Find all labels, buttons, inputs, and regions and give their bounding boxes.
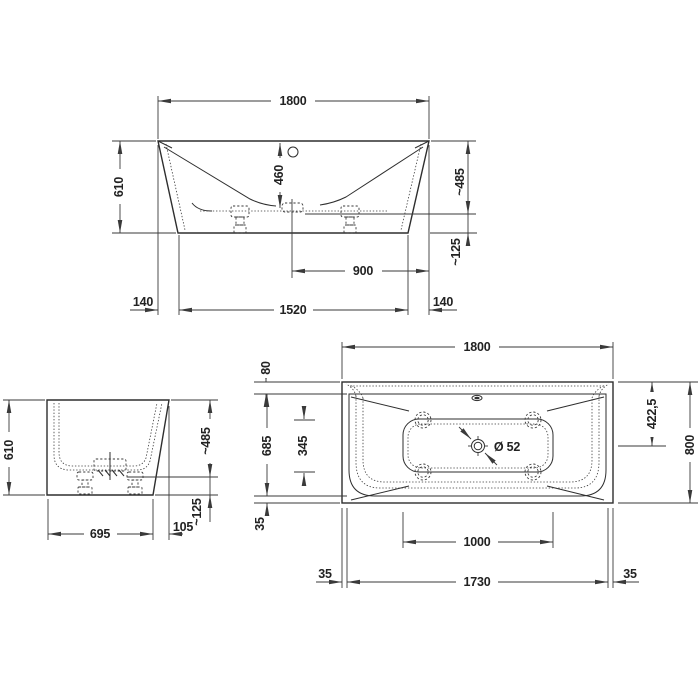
- dim-plan-rim-top: 80: [259, 358, 274, 402]
- dim-plan-floor-width: 345: [296, 406, 310, 486]
- dim-label-plan-overall-length: 1800: [463, 340, 490, 354]
- dim-label-side-overall-height: 610: [2, 440, 16, 461]
- drain-symbol: Ø 52: [459, 427, 520, 465]
- side-elevation-view: 610 ~485 ~125 695 105: [2, 400, 218, 541]
- dim-label-front-inner-depth: 460: [272, 165, 286, 186]
- dim-label-front-overall-width: 1800: [279, 94, 306, 108]
- dim-front-left-inset: 140: [130, 295, 158, 310]
- dim-label-plan-rim-left: 35: [318, 567, 332, 581]
- dim-side-rim-overhang: 105: [169, 520, 193, 534]
- plan-feet: [415, 412, 541, 480]
- dim-plan-drain-from-edge: 422,5: [645, 382, 660, 446]
- front-elevation-view: 1800 610 460 ~485 ~125 900 140: [112, 94, 477, 317]
- dim-label-front-base-width: 1520: [279, 303, 306, 317]
- dim-label-front-overall-height: 610: [112, 177, 126, 198]
- dim-label-plan-inner-length: 1730: [463, 575, 490, 589]
- dim-plan-overall-length: 1800: [342, 340, 613, 354]
- dim-front-rim-to-ledge: ~485: [453, 141, 468, 214]
- bathtub-side-outline: [47, 400, 169, 495]
- dim-plan-inner-width: 685: [260, 394, 275, 496]
- dim-plan-rim-right: 35: [613, 567, 639, 582]
- dim-side-overall-height: 610: [2, 400, 17, 495]
- side-right-foot: [127, 472, 143, 494]
- dim-front-center-to-right: 900: [292, 264, 429, 278]
- dim-plan-floor-length: 1000: [403, 535, 553, 549]
- dim-label-plan-rim-right: 35: [623, 567, 637, 581]
- dim-label-front-left-inset: 140: [133, 295, 154, 309]
- dim-label-plan-floor-width: 345: [296, 436, 310, 457]
- plan-extension-lines: [254, 342, 698, 588]
- plan-seat-edge: [408, 424, 548, 468]
- dim-side-base-width: 695: [48, 527, 153, 541]
- dim-front-overall-height: 610: [112, 141, 127, 233]
- dim-plan-rim-bottom: 35: [253, 503, 267, 531]
- dim-label-plan-floor-length: 1000: [463, 535, 490, 549]
- dim-label-side-rim-to-ledge: ~485: [199, 427, 213, 455]
- dim-label-front-right-inset: 140: [433, 295, 454, 309]
- plan-slope-edges: [351, 397, 604, 500]
- overflow-symbol-front: [288, 147, 298, 157]
- plan-view: Ø 52 1800: [253, 340, 698, 589]
- overflow-symbol-plan: [472, 395, 482, 400]
- dim-front-right-inset: 140: [429, 295, 457, 310]
- side-left-foot: [77, 472, 93, 494]
- dim-plan-inner-length: 1730: [347, 575, 608, 589]
- dim-side-base-height: ~125: [190, 477, 210, 526]
- front-left-foot: [231, 206, 249, 233]
- dim-label-front-center-to-right: 900: [353, 264, 374, 278]
- front-extension-lines: [112, 96, 477, 315]
- dim-label-drain-diameter: Ø 52: [494, 440, 521, 454]
- dim-plan-rim-left: 35: [316, 567, 342, 582]
- bathtub-front-outline: [158, 141, 429, 233]
- dim-label-plan-drain-from-edge: 422,5: [645, 399, 659, 430]
- dim-label-plan-inner-width: 685: [260, 436, 274, 457]
- dim-front-inner-depth: 460: [272, 143, 287, 208]
- dim-label-plan-rim-top: 80: [259, 361, 273, 375]
- dim-front-base-height: ~125: [449, 214, 468, 266]
- bathtub-dimension-drawing: 1800 610 460 ~485 ~125 900 140: [0, 0, 700, 700]
- dim-label-side-rim-overhang: 105: [173, 520, 194, 534]
- side-hidden-walls: [54, 403, 162, 480]
- dim-label-plan-rim-bottom: 35: [253, 517, 267, 531]
- dim-label-side-base-width: 695: [90, 527, 111, 541]
- dim-side-rim-to-ledge: ~485: [199, 400, 214, 477]
- technical-drawing-page: 1800 610 460 ~485 ~125 900 140: [0, 0, 700, 700]
- dim-front-base-width: 1520: [179, 303, 408, 317]
- dim-front-overall-width: 1800: [158, 94, 429, 108]
- dim-plan-overall-width: 800: [683, 382, 698, 503]
- dim-label-plan-overall-width: 800: [683, 435, 697, 456]
- plan-inner-rim: [349, 394, 606, 496]
- front-right-foot: [341, 206, 359, 233]
- dim-label-front-base-height: ~125: [449, 238, 463, 266]
- dim-label-front-rim-to-ledge: ~485: [453, 168, 467, 196]
